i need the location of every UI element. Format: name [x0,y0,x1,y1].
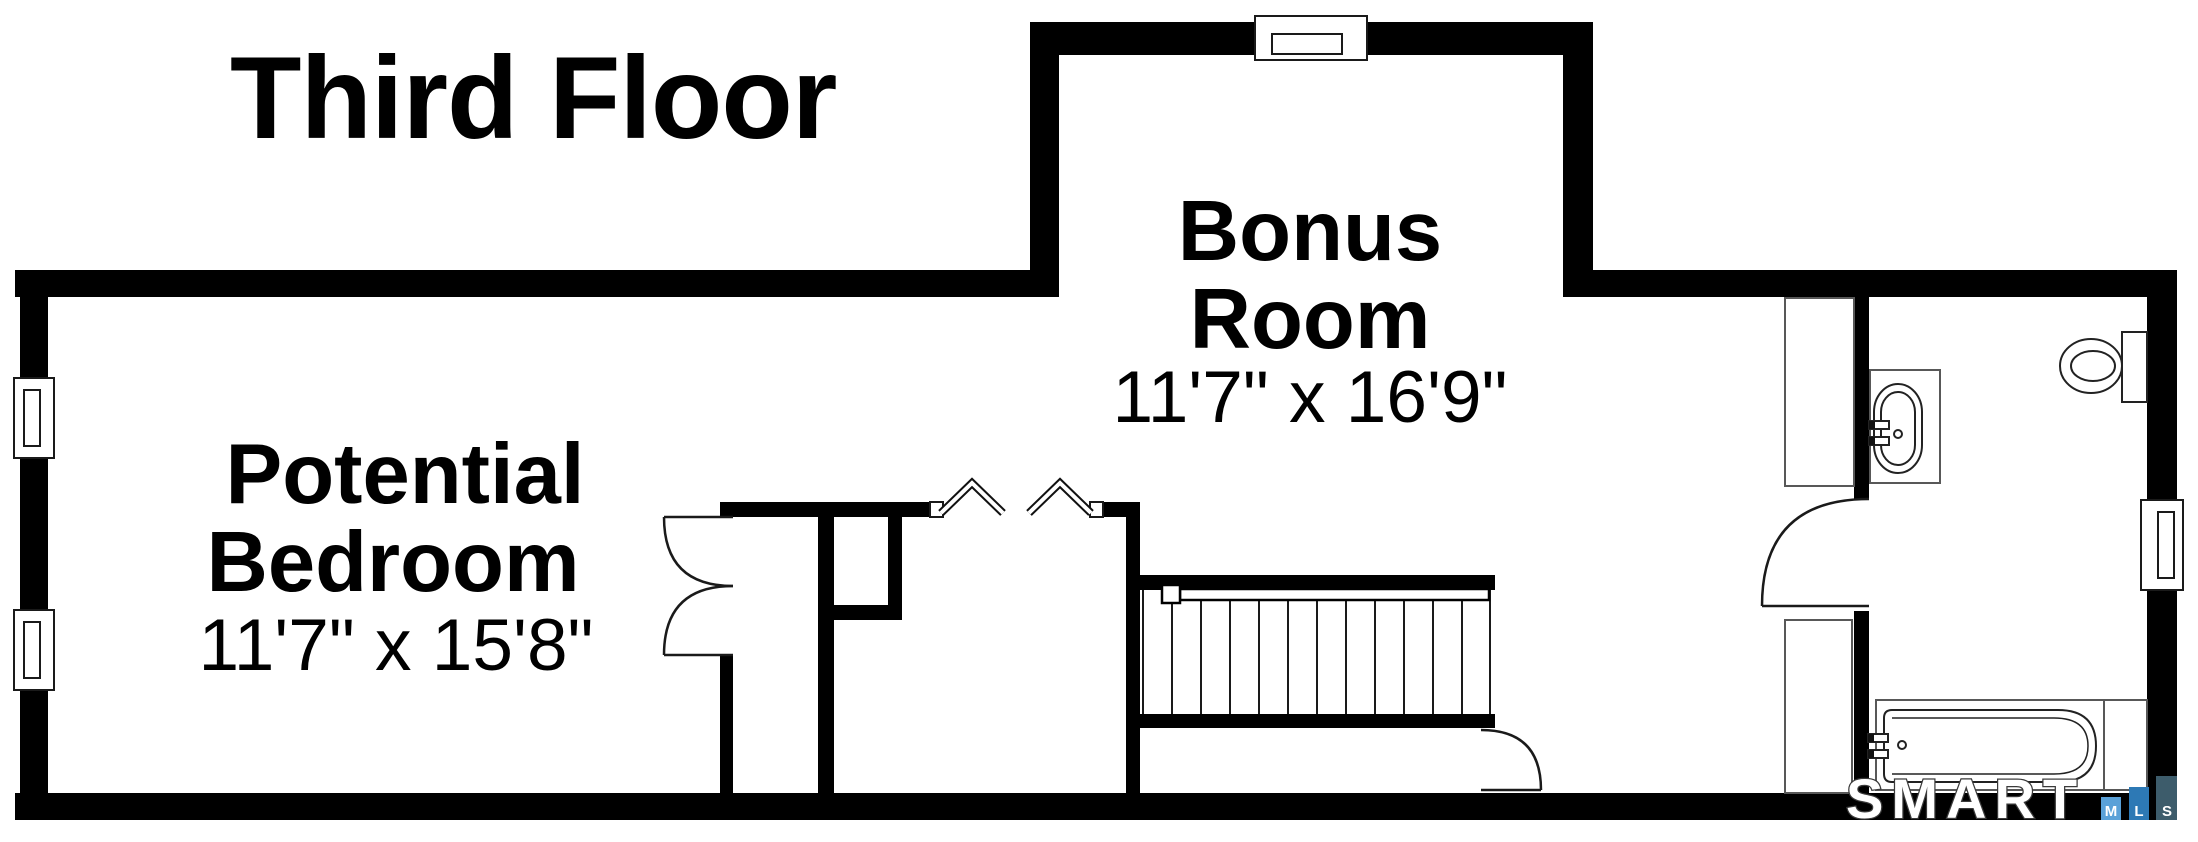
chase-wall-bottom [834,605,902,620]
bedroom-label-line2: Bedroom [206,515,579,610]
fixtures [1785,298,2147,793]
floorplan-image: Third Floor Potential Bedroom 11'7" x 15… [0,0,2198,842]
closet-upper [1785,298,1854,486]
page-title: Third Floor [230,32,836,163]
window-left-upper [14,378,54,458]
bonus-dimensions: 11'7" x 16'9" [1113,357,1508,438]
wall-top-left [15,270,1059,297]
logo-square-m-letter: M [2105,803,2118,820]
bedroom-label-line1: Potential [226,427,585,522]
doors [664,483,1869,790]
bump-wall-left [1030,22,1059,297]
wall-top-right [1563,270,2177,297]
bedroom-closet-wall [720,655,733,795]
toilet-bowl-inner [2071,351,2115,381]
sink-drain [1894,430,1902,438]
window-top-bump [1255,16,1367,60]
hall-wall-top-left-segment [720,502,937,517]
landing-wall-vertical [818,517,834,795]
bump-wall-right [1563,22,1593,297]
logo-square-s-letter: S [2162,803,2172,820]
bedroom-dimensions: 11'7" x 15'8" [199,605,594,686]
toilet [2060,332,2147,402]
bonus-label-line1: Bonus [1178,184,1442,279]
floorplan-svg: Third Floor Potential Bedroom 11'7" x 15… [0,0,2198,842]
tub-faucet-cap [1868,734,1874,742]
stair-enclosure-wall-bottom [1140,714,1495,728]
stair-wall-vertical [1126,502,1140,797]
toilet-tank [2122,332,2147,402]
sink-vanity [1869,370,1940,483]
wall-left [20,270,48,820]
bathroom-door [1762,499,1869,606]
stair-railing [1180,589,1489,600]
tub-faucet-cap [1868,750,1874,758]
chase-wall-right [888,517,902,620]
closet-lower [1785,620,1852,793]
stair-treads [1143,590,1490,714]
window-left-lower [14,610,54,690]
bonus-label-line2: Room [1190,272,1431,367]
stair-door [1481,730,1541,790]
bedroom-double-door [664,517,733,655]
sink-faucet-cap [1869,421,1875,429]
bathroom-wall-lower [1854,611,1869,793]
stairs [1143,585,1490,714]
doorway-chevrons [930,483,1103,517]
bathroom-wall-upper [1854,297,1869,499]
smartmls-wordmark: SMART [1846,767,2085,830]
sink-faucet-cap [1869,437,1875,445]
tub-drain [1898,741,1906,749]
stair-newel-post [1162,585,1180,603]
window-right [2141,500,2183,590]
logo-square-l-letter: L [2134,803,2143,820]
